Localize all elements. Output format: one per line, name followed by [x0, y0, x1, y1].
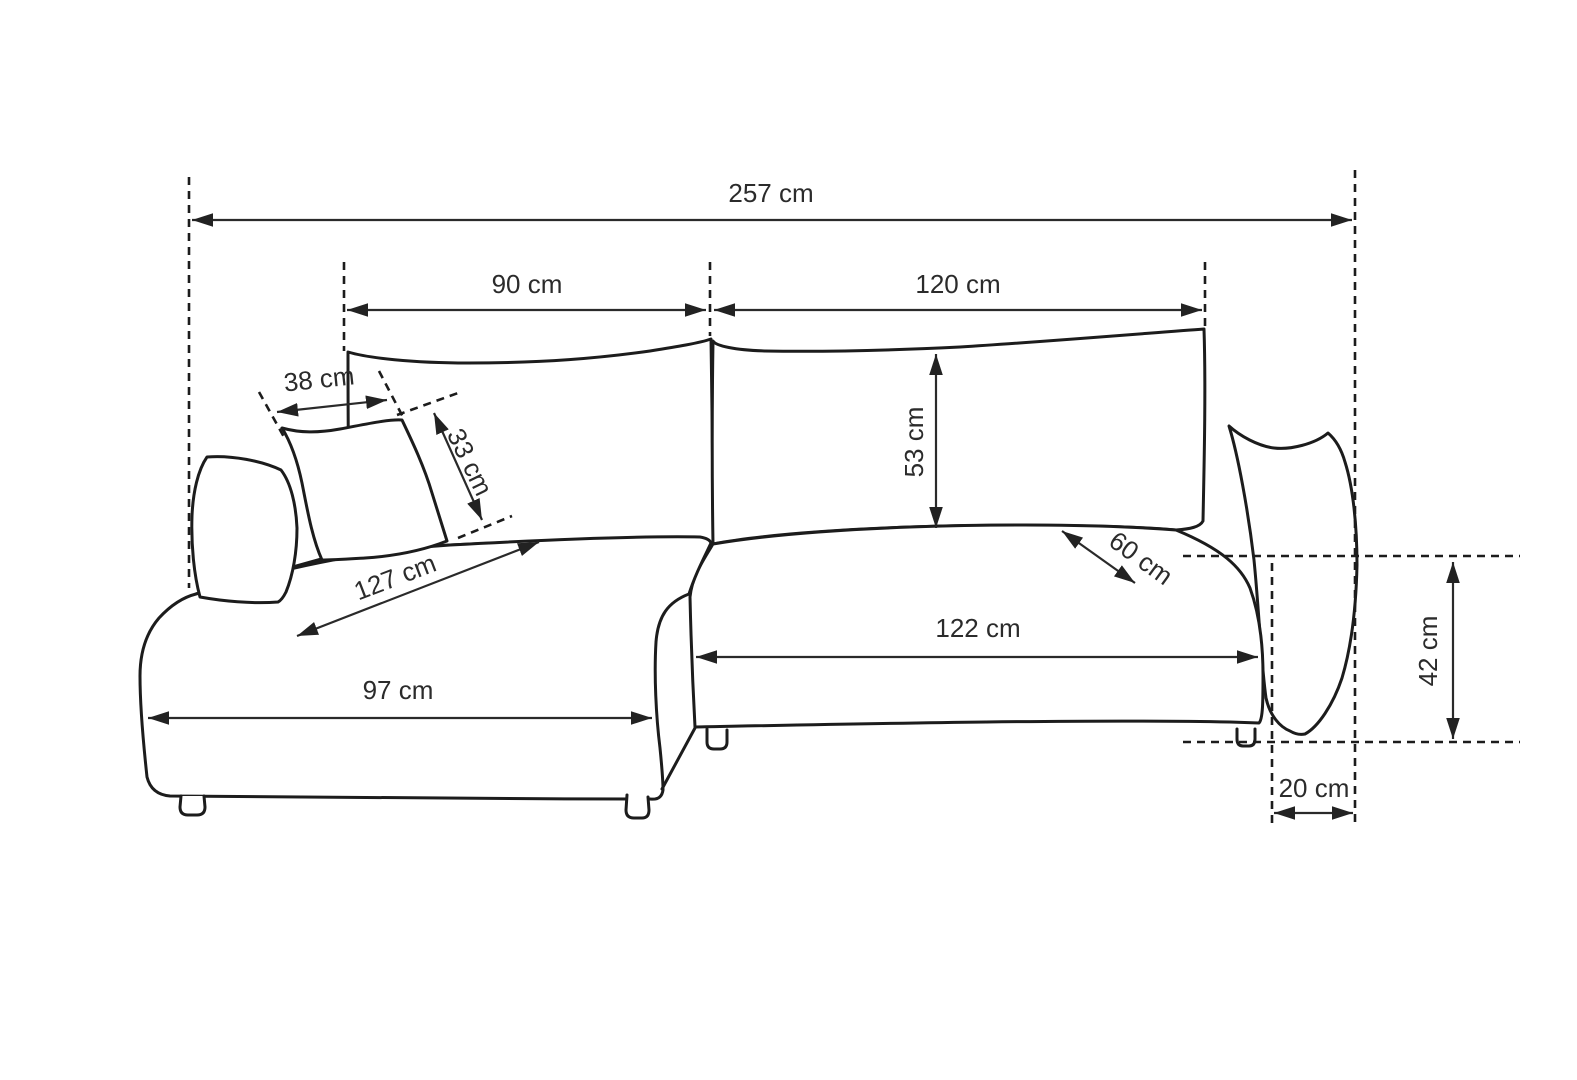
svg-text:20 cm: 20 cm	[1279, 773, 1350, 803]
svg-text:90 cm: 90 cm	[492, 269, 563, 299]
svg-text:42 cm: 42 cm	[1413, 616, 1443, 687]
svg-text:53 cm: 53 cm	[899, 407, 929, 478]
svg-text:38 cm: 38 cm	[282, 360, 356, 397]
svg-text:257 cm: 257 cm	[728, 178, 813, 208]
svg-text:97 cm: 97 cm	[363, 675, 434, 705]
svg-text:120 cm: 120 cm	[915, 269, 1000, 299]
svg-text:122 cm: 122 cm	[935, 613, 1020, 643]
